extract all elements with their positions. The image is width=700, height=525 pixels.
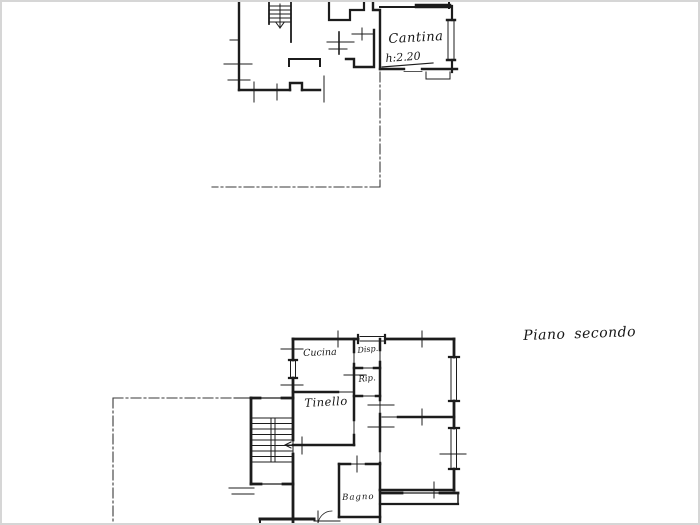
- lower-floorplan-drawing: [113, 331, 466, 525]
- floorplan-scan-page: Cantina h:2.20 Piano secondo Cucina Disp…: [0, 0, 700, 525]
- upper-staircase: [269, 2, 291, 42]
- lower-plan-ticks: [229, 331, 466, 498]
- lower-staircase: [251, 398, 293, 484]
- room-height-note: h:2.20: [385, 50, 421, 65]
- floorplan-linework: [2, 2, 700, 525]
- room-label-tinello: Tinello: [304, 394, 348, 410]
- room-label-cucina: Cucina: [303, 347, 337, 359]
- lower-boundary-dashdot: [113, 398, 234, 525]
- balcony-outline: [380, 493, 458, 504]
- room-label-cantina: Cantina: [388, 29, 444, 47]
- upper-boundary-dashdot: [212, 72, 380, 187]
- room-label-ripostiglio: Rip.: [358, 373, 376, 385]
- room-label-bagno: Bagno: [342, 492, 375, 503]
